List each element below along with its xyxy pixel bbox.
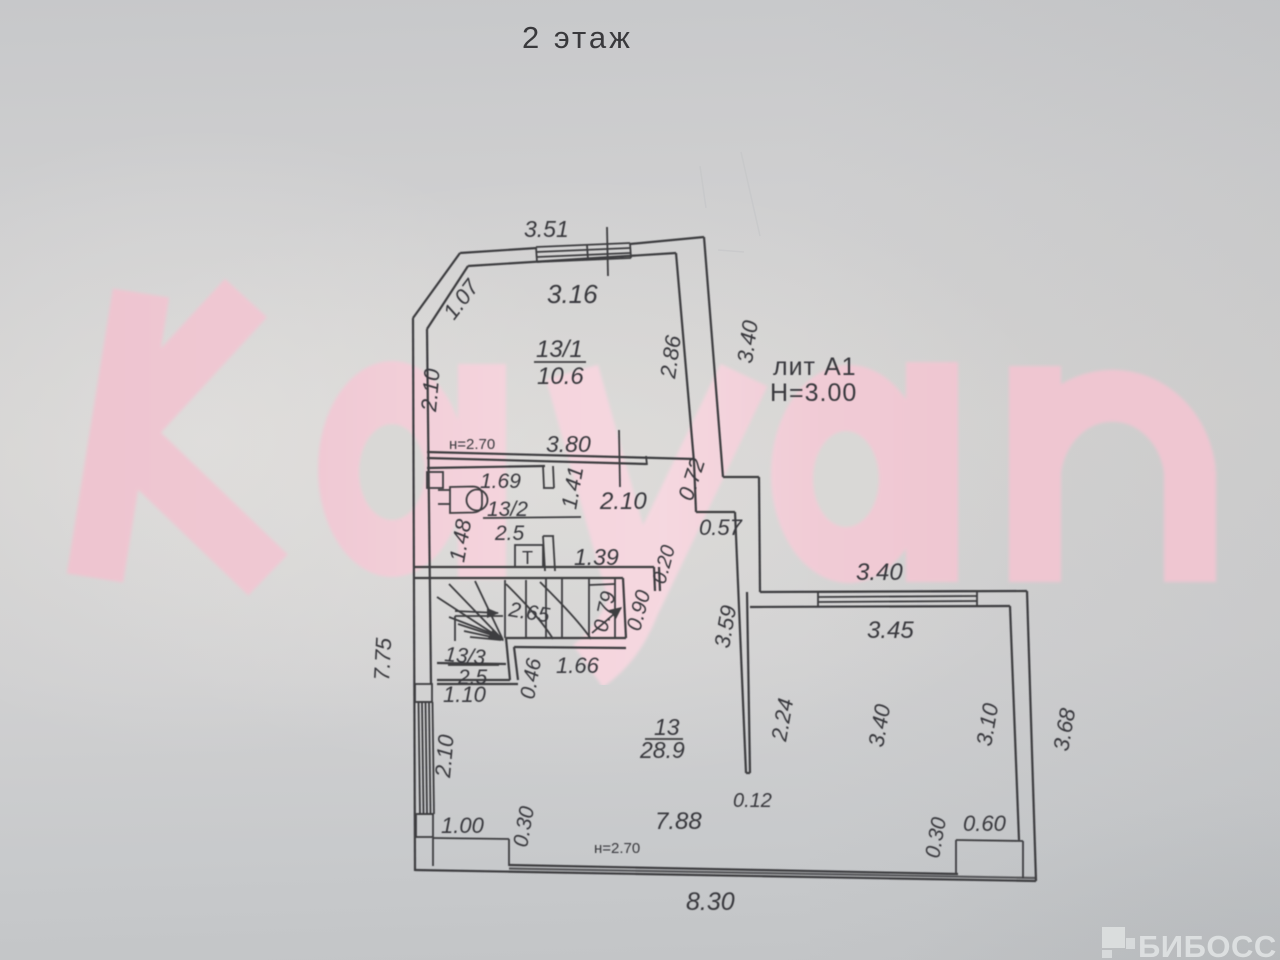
svg-text:1.39: 1.39 bbox=[574, 544, 619, 570]
svg-text:1.00: 1.00 bbox=[441, 813, 485, 838]
svg-text:2.24: 2.24 bbox=[766, 696, 798, 744]
svg-text:8.30: 8.30 bbox=[686, 888, 735, 916]
svg-text:1.10: 1.10 bbox=[443, 682, 487, 707]
svg-text:0.30: 0.30 bbox=[509, 804, 539, 849]
svg-text:лит А1: лит А1 bbox=[773, 353, 857, 381]
svg-text:28.9: 28.9 bbox=[639, 737, 685, 763]
svg-text:2.10: 2.10 bbox=[416, 367, 445, 414]
svg-text:3.16: 3.16 bbox=[547, 279, 598, 309]
svg-text:7.75: 7.75 bbox=[369, 636, 396, 681]
svg-text:н=2.70: н=2.70 bbox=[449, 436, 495, 453]
svg-text:1.66: 1.66 bbox=[556, 653, 600, 678]
svg-text:1.69: 1.69 bbox=[480, 470, 521, 493]
svg-text:0.57: 0.57 bbox=[699, 515, 743, 540]
svg-text:н=2.70: н=2.70 bbox=[594, 840, 640, 857]
svg-text:0.12: 0.12 bbox=[733, 790, 772, 812]
svg-text:3.40: 3.40 bbox=[856, 559, 903, 586]
svg-text:10.6: 10.6 bbox=[537, 363, 584, 390]
svg-text:2.10: 2.10 bbox=[430, 733, 459, 780]
svg-text:2.86: 2.86 bbox=[655, 333, 686, 381]
svg-text:2 этаж: 2 этаж bbox=[522, 20, 633, 55]
svg-text:2.5: 2.5 bbox=[494, 522, 525, 545]
svg-text:3.51: 3.51 bbox=[524, 216, 569, 242]
svg-text:2.10: 2.10 bbox=[599, 488, 647, 515]
svg-text:1.07: 1.07 bbox=[438, 274, 484, 324]
svg-text:3.10: 3.10 bbox=[971, 701, 1003, 748]
svg-text:Н=3.00: Н=3.00 bbox=[770, 379, 857, 407]
svg-text:3.40: 3.40 bbox=[863, 702, 895, 749]
svg-text:3.68: 3.68 bbox=[1048, 706, 1080, 753]
svg-text:3.40: 3.40 bbox=[732, 318, 763, 365]
svg-text:3.80: 3.80 bbox=[546, 431, 591, 457]
svg-text:3.45: 3.45 bbox=[867, 617, 914, 644]
svg-text:0.60: 0.60 bbox=[963, 811, 1007, 836]
svg-text:13/1: 13/1 bbox=[536, 336, 583, 363]
svg-text:БИБОСС: БИБОСС bbox=[1138, 929, 1277, 960]
svg-text:7.88: 7.88 bbox=[655, 808, 702, 835]
svg-text:Т: Т bbox=[522, 548, 533, 568]
svg-text:3.59: 3.59 bbox=[709, 603, 741, 650]
svg-text:0.30: 0.30 bbox=[921, 815, 951, 860]
svg-text:0.46: 0.46 bbox=[516, 656, 546, 701]
svg-text:2.65: 2.65 bbox=[506, 598, 551, 627]
